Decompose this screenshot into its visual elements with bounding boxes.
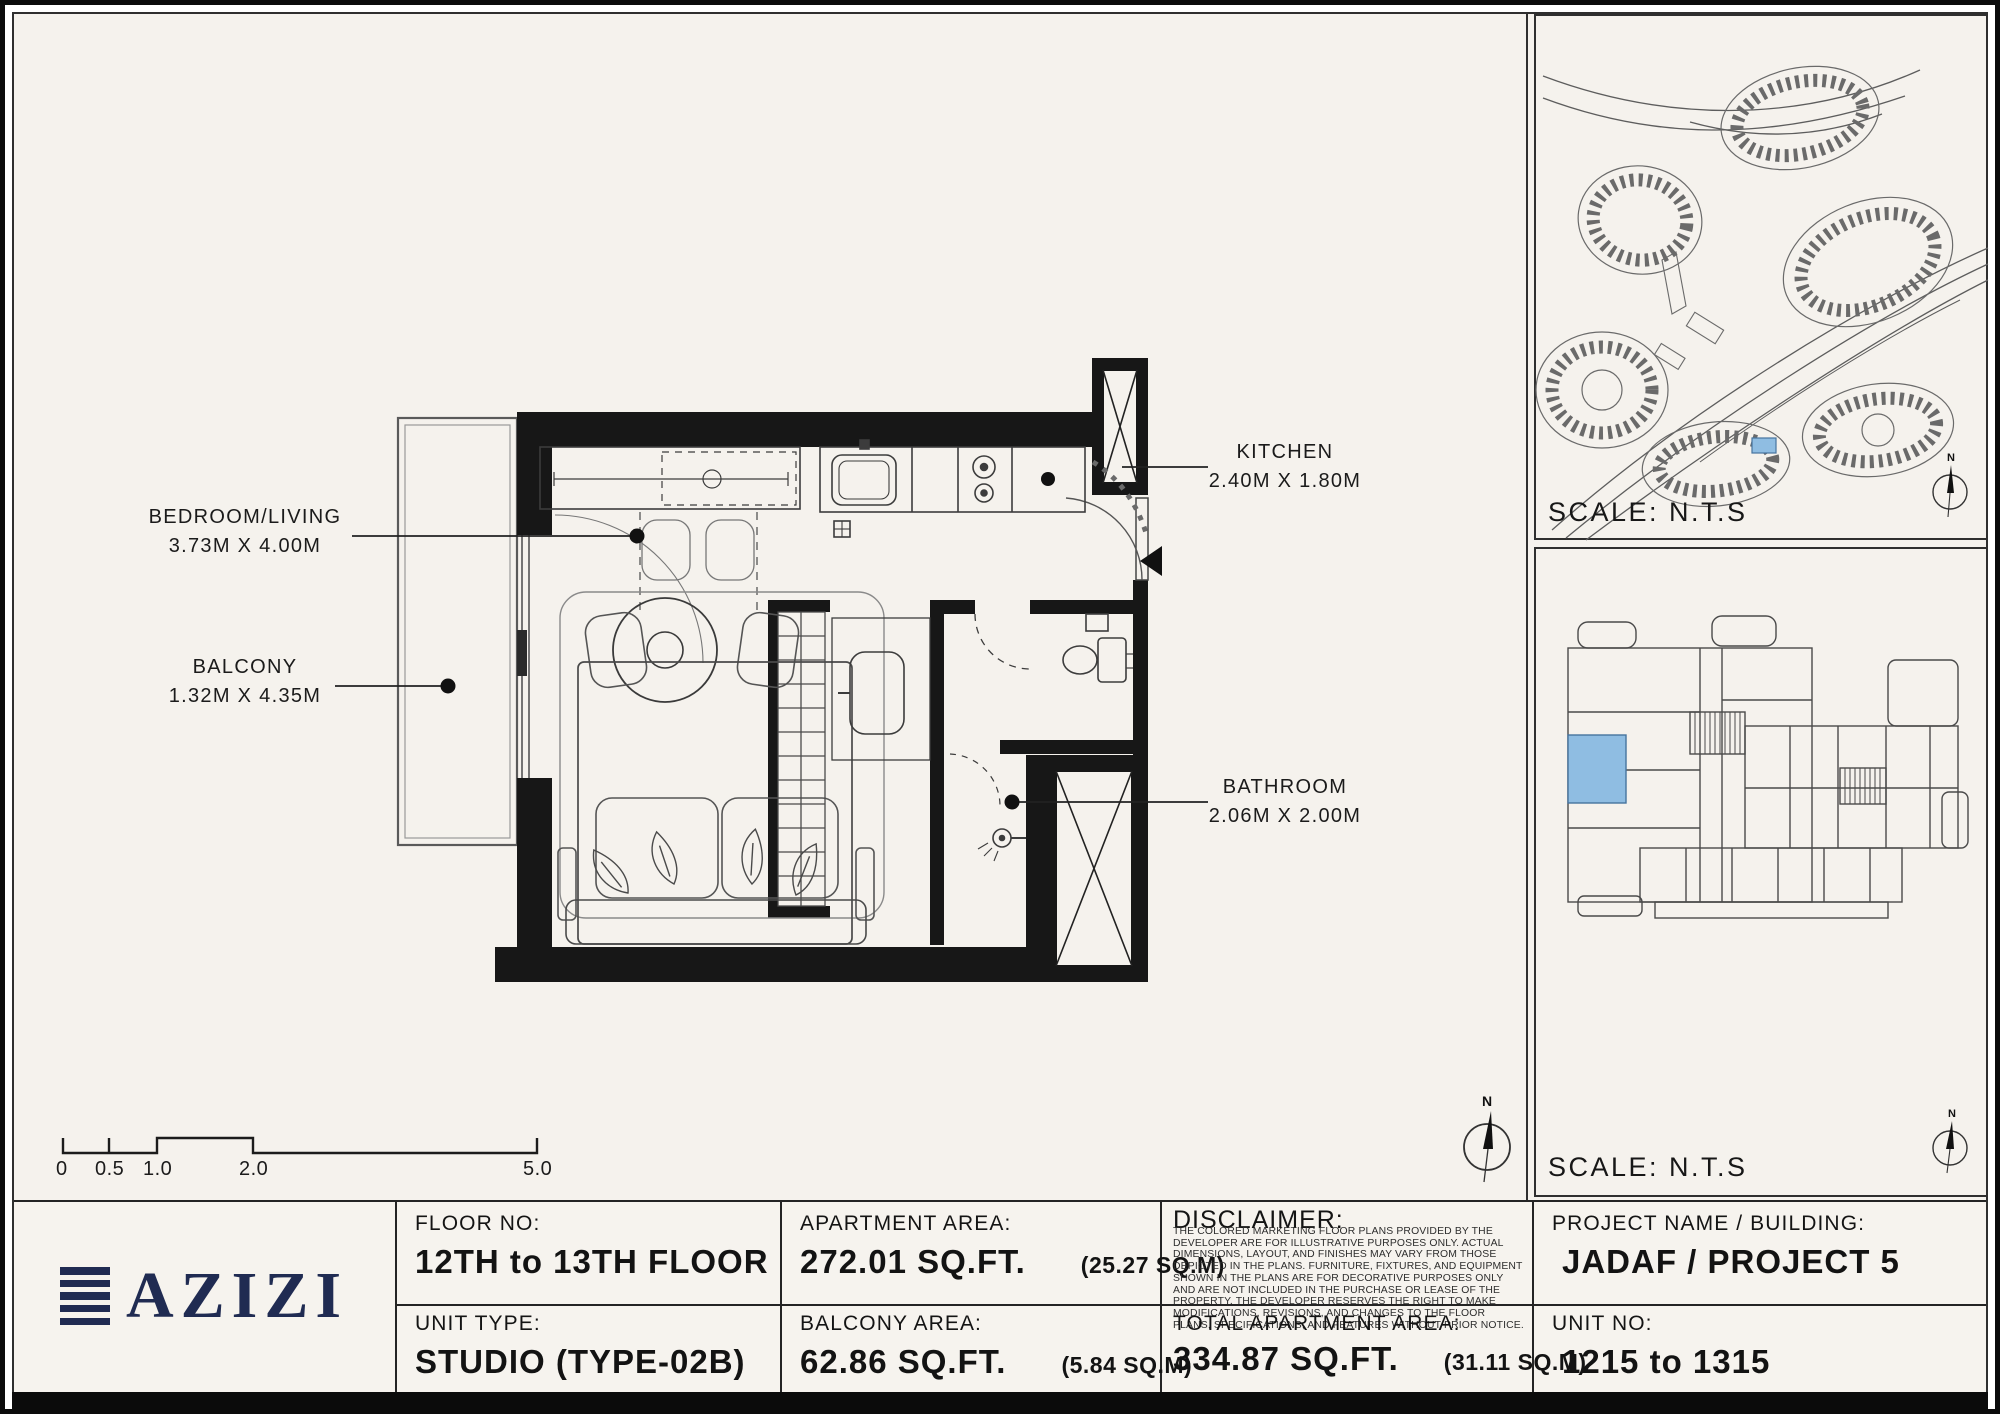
vanity-basin <box>850 652 904 734</box>
bedroom-furniture <box>558 592 884 944</box>
room-name: BATHROOM <box>1150 773 1420 802</box>
total-area-value: 334.87 SQ.FT. <box>1173 1340 1399 1378</box>
label-bathroom: BATHROOM 2.06M X 2.00M <box>1150 773 1420 831</box>
scale-tick-05: 0.5 <box>95 1158 124 1181</box>
azizi-bars-icon <box>60 1267 110 1325</box>
desk-area <box>555 512 757 663</box>
unit-no-label: UNIT NO: <box>1552 1312 1653 1336</box>
site-map-drawing: N <box>1536 52 1988 540</box>
label-balcony: BALCONY 1.32M X 4.35M <box>110 653 380 711</box>
highlighted-unit-map <box>1752 438 1776 453</box>
balcony-area-value: 62.86 SQ.FT. <box>800 1343 1006 1381</box>
shower-head <box>978 829 1026 861</box>
azizi-logo-text: AZIZI <box>126 1266 348 1326</box>
unit-no-value: 1215 to 1315 <box>1562 1343 1770 1381</box>
bed <box>578 662 852 944</box>
compass-n-label: N <box>1482 1093 1492 1109</box>
key-plan-drawing: N <box>1568 616 1968 1173</box>
map-compass-north-icon <box>1933 465 1967 517</box>
glass-door-handle <box>517 630 527 676</box>
table-bottom-border <box>12 1392 1988 1409</box>
balcony-area-label: BALCONY AREA: <box>800 1312 982 1336</box>
unit-type-value: STUDIO (TYPE-02B) <box>415 1343 746 1381</box>
floorplan-sheet: N <box>0 0 2000 1414</box>
pillow-leaves <box>587 827 828 901</box>
balcony-outline <box>398 418 517 845</box>
azizi-logo: AZIZI <box>14 1200 394 1392</box>
kitchen-fixtures <box>820 440 1085 537</box>
floor-no-label: FLOOR NO: <box>415 1212 540 1236</box>
scale-bar <box>63 1138 537 1153</box>
table-divider <box>780 1202 782 1392</box>
map-compass-n-label: N <box>1947 452 1955 464</box>
closet <box>540 447 800 509</box>
wardrobe <box>778 612 825 906</box>
scale-tick-2: 2.0 <box>239 1158 268 1181</box>
apartment-area-label: APARTMENT AREA: <box>800 1212 1011 1236</box>
apartment-area-value: 272.01 SQ.FT. <box>800 1243 1026 1281</box>
toilet <box>1063 614 1133 682</box>
label-kitchen: KITCHEN 2.40M X 1.80M <box>1150 438 1420 496</box>
scale-tick-5: 5.0 <box>523 1158 552 1181</box>
floor-no-value: 12TH to 13TH FLOOR <box>415 1243 769 1281</box>
room-name: BEDROOM/LIVING <box>110 503 380 532</box>
key-plan-scale-label: SCALE: N.T.S <box>1548 1152 1748 1183</box>
label-bedroom-living: BEDROOM/LIVING 3.73M X 4.00M <box>110 503 380 561</box>
room-dims: 3.73M X 4.00M <box>110 532 380 561</box>
scale-tick-1: 1.0 <box>143 1158 172 1181</box>
highlighted-unit-keyplan <box>1568 735 1626 803</box>
project-name-value: JADAF / PROJECT 5 <box>1562 1243 1900 1281</box>
site-map-scale-label: SCALE: N.T.S <box>1548 497 1748 528</box>
room-name: BALCONY <box>110 653 380 682</box>
shaft-top <box>1092 358 1148 495</box>
room-dims: 1.32M X 4.35M <box>110 682 380 711</box>
room-name: KITCHEN <box>1150 438 1420 467</box>
shaft-bottom <box>1040 755 1148 982</box>
room-dims: 2.06M X 2.00M <box>1150 802 1420 831</box>
room-dims: 2.40M X 1.80M <box>1150 467 1420 496</box>
total-area-label: TOTAL APARTMENT AREA: <box>1173 1312 1461 1336</box>
compass-north-icon <box>1464 1111 1510 1182</box>
scale-tick-0: 0 <box>56 1158 68 1181</box>
keyplan-compass-north-icon <box>1933 1121 1967 1173</box>
table-divider <box>395 1202 397 1392</box>
unit-type-label: UNIT TYPE: <box>415 1312 541 1336</box>
entrance-arrow-icon <box>1140 546 1162 576</box>
keyplan-compass-n-label: N <box>1948 1108 1956 1120</box>
project-name-label: PROJECT NAME / BUILDING: <box>1552 1212 1865 1236</box>
